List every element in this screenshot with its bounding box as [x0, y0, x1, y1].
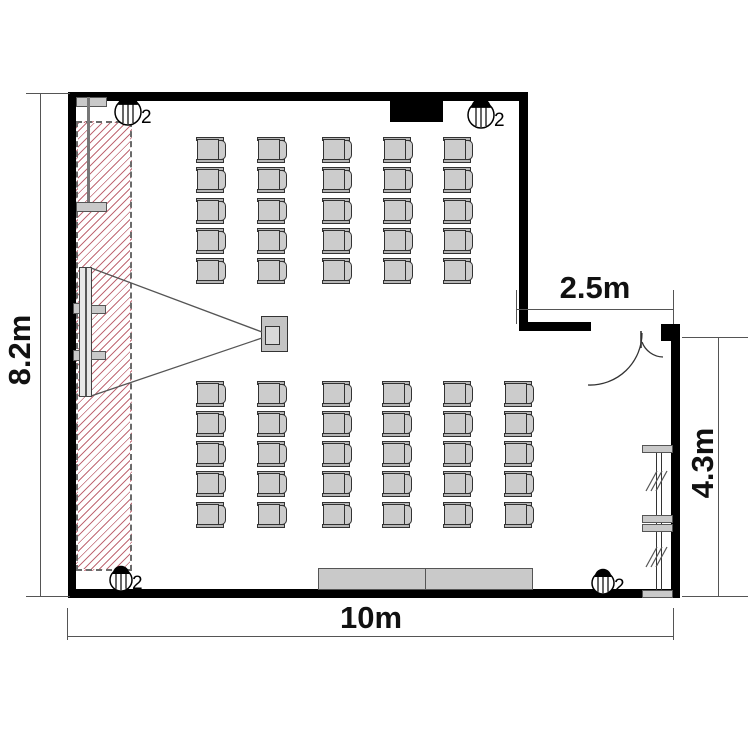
dim-label-notch: 2.5m: [525, 271, 665, 305]
chair: [443, 167, 473, 193]
chair-seat: [197, 473, 219, 495]
wall-track-top-bracket: [76, 97, 107, 107]
chair-backrest: [218, 444, 226, 464]
chair-seat: [258, 200, 280, 222]
chair-backrest: [526, 505, 534, 525]
chair-armrest-bottom: [443, 403, 471, 407]
wall-track-pole: [87, 97, 90, 210]
chair-armrest-bottom: [257, 463, 285, 467]
chair: [196, 228, 226, 254]
chair-backrest: [344, 261, 352, 281]
chair-seat: [384, 200, 406, 222]
chair-armrest-bottom: [504, 463, 532, 467]
chair-seat: [258, 230, 280, 252]
ceiling-lights-layer: 2222: [110, 95, 625, 597]
chair-armrest-bottom: [443, 189, 471, 193]
chair-armrest-bottom: [322, 189, 350, 193]
chair-armrest-bottom: [257, 433, 285, 437]
door-swing-arc-large: [588, 333, 642, 385]
chair-backrest: [344, 384, 352, 404]
chair-seat: [258, 169, 280, 191]
chair-backrest: [344, 231, 352, 251]
light-count-label: 2: [494, 110, 505, 131]
chair-backrest: [465, 505, 473, 525]
chair-seat: [323, 473, 345, 495]
chair-backrest: [344, 170, 352, 190]
chair: [257, 471, 287, 497]
chair-seat: [258, 139, 280, 161]
chair-seat: [323, 443, 345, 465]
chair-armrest-bottom: [443, 433, 471, 437]
dim-line-bottom: [67, 636, 674, 637]
chair-seat: [444, 200, 466, 222]
chair: [196, 381, 226, 407]
shelf-bracket-bottom: [642, 590, 673, 598]
chair-armrest-bottom: [504, 493, 532, 497]
chair: [257, 502, 287, 528]
chair: [382, 411, 412, 437]
chair-armrest-bottom: [443, 463, 471, 467]
chair: [322, 411, 352, 437]
chair-armrest-bottom: [257, 403, 285, 407]
chair-seat: [383, 504, 405, 526]
chair: [322, 258, 352, 284]
light-cap-icon: [595, 569, 612, 577]
chair-backrest: [279, 444, 287, 464]
chair-backrest: [279, 505, 287, 525]
chair-seat: [197, 139, 219, 161]
chair-seat: [383, 443, 405, 465]
chair-armrest-bottom: [196, 524, 224, 528]
dim-tick-right-bottom: [682, 596, 748, 597]
chair-backrest: [465, 140, 473, 160]
chair: [196, 198, 226, 224]
chair-armrest-bottom: [257, 189, 285, 193]
chair-seat: [258, 260, 280, 282]
chair-armrest-bottom: [196, 159, 224, 163]
chair-backrest: [526, 414, 534, 434]
dim-tick-bottom-left: [67, 608, 68, 640]
chair-backrest: [526, 444, 534, 464]
chair-seat: [383, 383, 405, 405]
chair-backrest: [218, 261, 226, 281]
chair-armrest-bottom: [196, 493, 224, 497]
chair-seat: [323, 504, 345, 526]
wall-right: [671, 331, 680, 598]
chair-backrest: [279, 201, 287, 221]
chair-seat: [258, 413, 280, 435]
chair-seat: [258, 504, 280, 526]
chair: [322, 198, 352, 224]
chair: [322, 502, 352, 528]
chair: [196, 411, 226, 437]
chair-seat: [444, 443, 466, 465]
shelf-bracket-top: [642, 445, 673, 453]
chair-backrest: [279, 261, 287, 281]
chair-backrest: [465, 201, 473, 221]
dim-label-bottom: 10m: [321, 601, 421, 635]
screen-bracket-upper: [91, 305, 106, 314]
dim-tick-notch-left: [516, 290, 517, 324]
chair-seat: [383, 413, 405, 435]
chair: [257, 137, 287, 163]
chair-seat: [444, 504, 466, 526]
chair: [196, 502, 226, 528]
chair-seat: [258, 473, 280, 495]
rear-table-left: [318, 568, 426, 590]
chair-backrest: [218, 201, 226, 221]
chair: [196, 441, 226, 467]
chair-seat: [258, 443, 280, 465]
dim-label-left: 8.2m: [3, 295, 37, 405]
dim-label-right: 4.3m: [686, 408, 720, 518]
chair-seat: [505, 443, 527, 465]
wall-bottom: [68, 589, 680, 598]
chair: [443, 381, 473, 407]
shelf-bracket-middle-lower: [642, 524, 673, 532]
chair-seat: [197, 383, 219, 405]
chair-backrest: [279, 384, 287, 404]
chair: [504, 502, 534, 528]
wall-track-bottom-bracket: [76, 202, 107, 212]
chair-seat: [505, 413, 527, 435]
chair-armrest-bottom: [382, 433, 410, 437]
chair-armrest-bottom: [504, 403, 532, 407]
chair-seat: [323, 139, 345, 161]
chair-seat: [197, 169, 219, 191]
chair: [504, 381, 534, 407]
dim-line-notch: [516, 309, 674, 310]
chair-armrest-bottom: [196, 220, 224, 224]
chair: [322, 228, 352, 254]
chair: [196, 137, 226, 163]
chair-backrest: [218, 384, 226, 404]
chair-seat: [444, 139, 466, 161]
chair-armrest-bottom: [196, 463, 224, 467]
light-count-label: 2: [141, 107, 152, 128]
chair-armrest-bottom: [257, 524, 285, 528]
chair-armrest-bottom: [257, 220, 285, 224]
chair-seat: [323, 383, 345, 405]
chair: [443, 502, 473, 528]
chair: [383, 228, 413, 254]
chair-backrest: [279, 170, 287, 190]
chair-seat: [323, 260, 345, 282]
chair-seat: [384, 230, 406, 252]
rear-table-right: [425, 568, 533, 590]
chair-armrest-bottom: [322, 433, 350, 437]
chair-backrest: [344, 444, 352, 464]
light-circle-icon: [110, 569, 132, 591]
chair-backrest: [526, 474, 534, 494]
chair-armrest-bottom: [443, 280, 471, 284]
chair: [196, 471, 226, 497]
chair-backrest: [404, 384, 412, 404]
chair-backrest: [279, 231, 287, 251]
screen-wall-mount-lower: [73, 350, 80, 361]
chair: [322, 381, 352, 407]
chair-backrest: [218, 474, 226, 494]
chair-armrest-bottom: [196, 250, 224, 254]
chair-armrest-bottom: [196, 433, 224, 437]
chair: [257, 167, 287, 193]
chair-backrest: [404, 444, 412, 464]
light-circle-icon: [468, 102, 494, 128]
chair-backrest: [404, 474, 412, 494]
chair-backrest: [218, 140, 226, 160]
chair-armrest-bottom: [322, 524, 350, 528]
chair: [382, 471, 412, 497]
chair-armrest-bottom: [382, 524, 410, 528]
chair-armrest-bottom: [257, 159, 285, 163]
chair: [382, 441, 412, 467]
projection-screen: [79, 267, 92, 397]
chair: [257, 198, 287, 224]
chair-seat: [384, 260, 406, 282]
chair-backrest: [526, 384, 534, 404]
chair-armrest-bottom: [504, 433, 532, 437]
chair-armrest-bottom: [443, 220, 471, 224]
chair-backrest: [465, 384, 473, 404]
chair: [504, 441, 534, 467]
wall-top: [68, 92, 528, 101]
chair-backrest: [279, 140, 287, 160]
dim-tick-bottom-right: [673, 608, 674, 640]
chair-backrest: [465, 474, 473, 494]
screen-bracket-lower: [91, 351, 106, 360]
chair-armrest-bottom: [383, 189, 411, 193]
chair-armrest-bottom: [382, 463, 410, 467]
chair-seat: [444, 473, 466, 495]
chair-seat: [384, 169, 406, 191]
chair-armrest-bottom: [443, 524, 471, 528]
chair-seat: [383, 473, 405, 495]
chair-seat: [444, 413, 466, 435]
dim-tick-left-top: [26, 93, 70, 94]
chair-armrest-bottom: [443, 493, 471, 497]
chair-armrest-bottom: [383, 159, 411, 163]
chair-armrest-bottom: [443, 159, 471, 163]
ceiling-light-symbol: 2: [468, 98, 505, 131]
chair: [504, 471, 534, 497]
chair-backrest: [405, 201, 413, 221]
chair-armrest-bottom: [322, 403, 350, 407]
chair-backrest: [405, 231, 413, 251]
black-equipment-box: [390, 100, 443, 122]
shelf-bracket-middle-upper: [642, 515, 673, 523]
chair-armrest-bottom: [257, 250, 285, 254]
chair: [443, 441, 473, 467]
chair-backrest: [344, 414, 352, 434]
chair: [322, 137, 352, 163]
chair-armrest-bottom: [322, 463, 350, 467]
chair-backrest: [465, 414, 473, 434]
chair: [443, 411, 473, 437]
door-swing-arc-small: [642, 342, 663, 357]
chair: [196, 258, 226, 284]
screen-inner-line: [85, 268, 87, 396]
chair: [504, 411, 534, 437]
projector-lens: [265, 326, 280, 345]
chair-seat: [444, 260, 466, 282]
chair-seat: [197, 260, 219, 282]
chair-armrest-bottom: [196, 280, 224, 284]
chair-armrest-bottom: [382, 403, 410, 407]
chair: [383, 137, 413, 163]
chair: [322, 167, 352, 193]
chair: [257, 258, 287, 284]
chair-seat: [444, 230, 466, 252]
chair-armrest-bottom: [322, 159, 350, 163]
chair-armrest-bottom: [257, 493, 285, 497]
chair-seat: [323, 230, 345, 252]
chair-backrest: [465, 261, 473, 281]
chair: [382, 502, 412, 528]
chair-seat: [197, 413, 219, 435]
chair-backrest: [279, 414, 287, 434]
dim-tick-right-top: [682, 337, 748, 338]
chair-backrest: [465, 170, 473, 190]
chair: [443, 258, 473, 284]
chair: [383, 167, 413, 193]
chair: [443, 228, 473, 254]
chair: [383, 258, 413, 284]
chair-seat: [444, 383, 466, 405]
chair-armrest-bottom: [504, 524, 532, 528]
chair-seat: [505, 504, 527, 526]
chair-armrest-bottom: [383, 220, 411, 224]
chair-armrest-bottom: [382, 493, 410, 497]
chair-backrest: [279, 474, 287, 494]
chair-armrest-bottom: [383, 250, 411, 254]
chair-backrest: [404, 505, 412, 525]
chair-backrest: [344, 505, 352, 525]
chair-armrest-bottom: [443, 250, 471, 254]
chair-backrest: [218, 170, 226, 190]
chair-armrest-bottom: [322, 493, 350, 497]
chair-backrest: [404, 414, 412, 434]
chair-backrest: [465, 231, 473, 251]
chair: [322, 441, 352, 467]
projector: [261, 316, 288, 352]
dim-tick-notch-right: [673, 290, 674, 324]
floor-plan: 8.2m 10m 2.5m 4.3m 2222: [0, 0, 750, 750]
chair-backrest: [465, 444, 473, 464]
chair: [443, 137, 473, 163]
chair-armrest-bottom: [196, 403, 224, 407]
chair-seat: [323, 169, 345, 191]
chair: [257, 381, 287, 407]
chair-armrest-bottom: [322, 280, 350, 284]
chair: [383, 198, 413, 224]
chair-armrest-bottom: [322, 220, 350, 224]
chair-seat: [505, 473, 527, 495]
chair-armrest-bottom: [383, 280, 411, 284]
chair: [257, 228, 287, 254]
dim-tick-left-bottom: [26, 596, 70, 597]
chair-backrest: [405, 261, 413, 281]
chair-backrest: [344, 201, 352, 221]
chair-armrest-bottom: [196, 189, 224, 193]
chair-backrest: [218, 505, 226, 525]
screen-wall-mount-upper: [73, 303, 80, 314]
chair: [257, 441, 287, 467]
chair-seat: [197, 200, 219, 222]
chair-armrest-bottom: [322, 250, 350, 254]
chair-backrest: [405, 140, 413, 160]
chair: [257, 411, 287, 437]
chair-backrest: [344, 474, 352, 494]
wall-notch-horizontal: [519, 322, 591, 331]
chair-seat: [505, 383, 527, 405]
chair-seat: [384, 139, 406, 161]
chair-seat: [444, 169, 466, 191]
chair-seat: [197, 504, 219, 526]
chair: [443, 471, 473, 497]
chair-seat: [258, 383, 280, 405]
chair-backrest: [405, 170, 413, 190]
chair-seat: [323, 200, 345, 222]
chair-backrest: [218, 231, 226, 251]
dim-line-left: [40, 93, 41, 597]
chair-seat: [323, 413, 345, 435]
chair: [196, 167, 226, 193]
chair: [322, 471, 352, 497]
chair-backrest: [218, 414, 226, 434]
chair-backrest: [344, 140, 352, 160]
chair-armrest-bottom: [257, 280, 285, 284]
chair: [382, 381, 412, 407]
chair: [443, 198, 473, 224]
chair-seat: [197, 443, 219, 465]
chair-seat: [197, 230, 219, 252]
wall-left: [68, 92, 76, 598]
